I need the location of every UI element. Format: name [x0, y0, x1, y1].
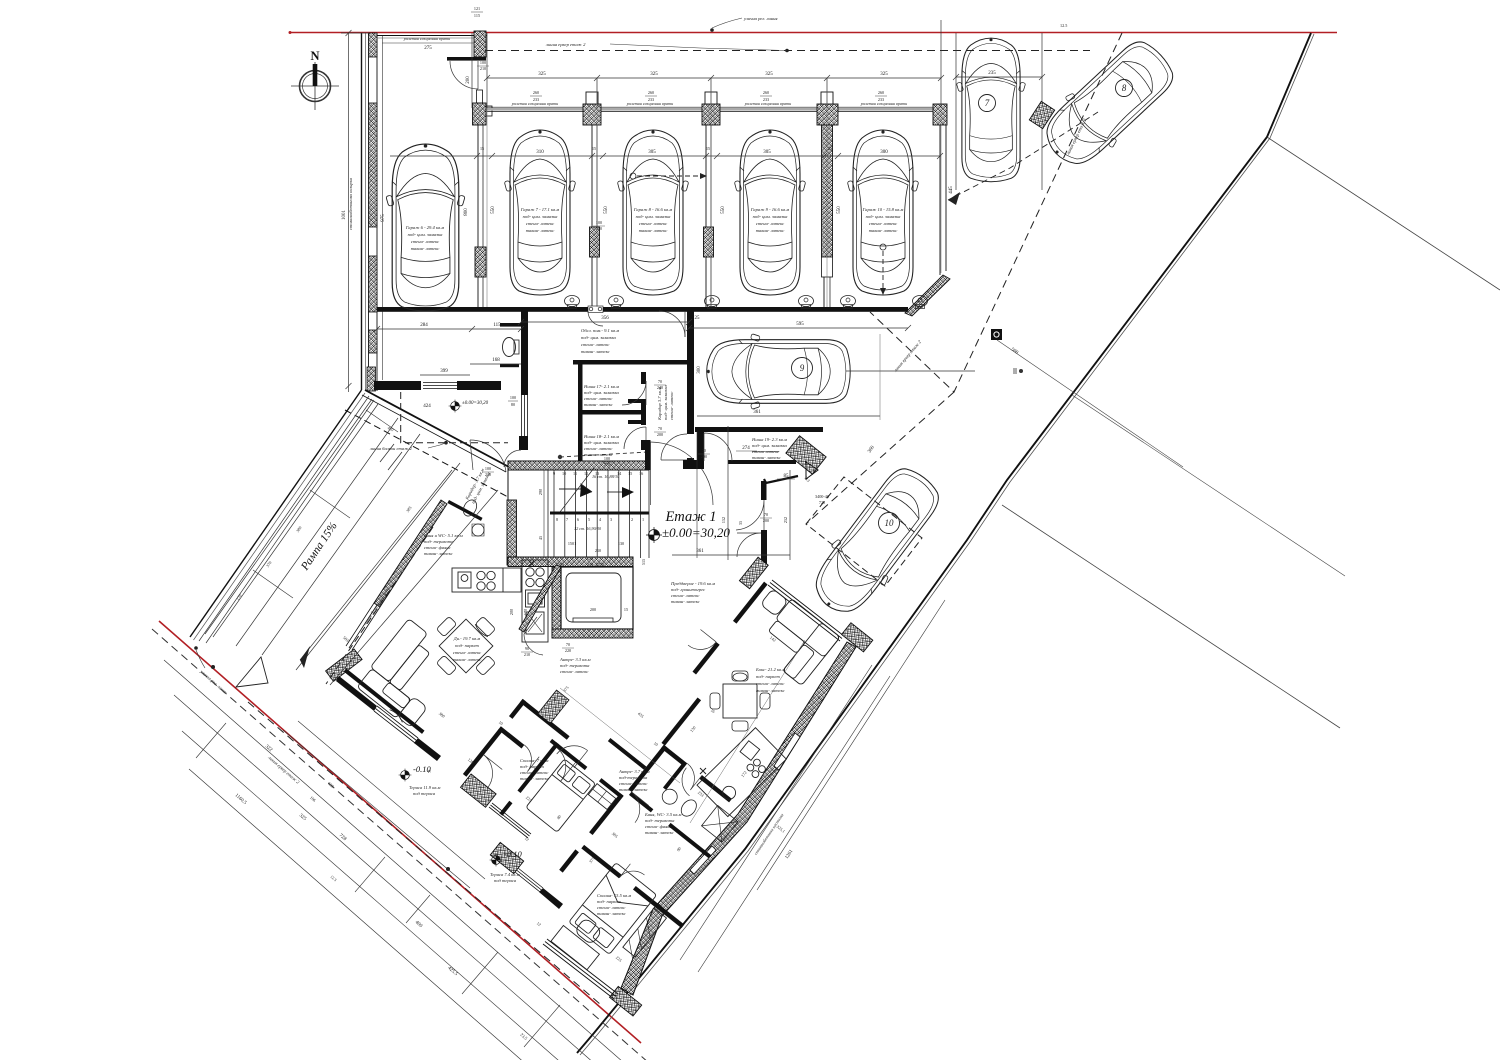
svg-text:25: 25: [695, 316, 701, 321]
svg-text:260: 260: [533, 90, 539, 95]
svg-text:233: 233: [648, 97, 654, 102]
svg-text:8: 8: [556, 517, 558, 522]
svg-text:таван- латекс: таван- латекс: [639, 228, 668, 233]
svg-text:таван- латекс: таван- латекс: [520, 776, 549, 781]
svg-text:290: 290: [538, 489, 543, 495]
svg-text:таван- латекс: таван- латекс: [597, 911, 626, 916]
svg-text:стени- латекс: стени- латекс: [411, 239, 439, 244]
svg-text:975: 975: [381, 214, 386, 222]
svg-text:под- цим. замазка: под- цим. замазка: [752, 443, 788, 448]
svg-text:70: 70: [566, 642, 570, 647]
svg-text:Гараж 10 - 15.8 кв.м: Гараж 10 - 15.8 кв.м: [862, 207, 904, 212]
svg-text:13: 13: [595, 471, 599, 476]
svg-text:399: 399: [440, 369, 448, 374]
svg-text:стени- латекс: стени- латекс: [520, 770, 548, 775]
svg-text:таван- латекс: таван- латекс: [411, 246, 440, 251]
svg-text:233: 233: [533, 97, 539, 102]
svg-text:под- цим. замазка: под- цим. замазка: [584, 440, 620, 445]
svg-text:Тераса 11.9 кв.м: Тераса 11.9 кв.м: [409, 785, 441, 790]
svg-text:таван- латекс: таван- латекс: [526, 228, 555, 233]
svg-text:линия еркер етаж 2: линия еркер етаж 2: [545, 42, 586, 47]
svg-text:под- гранитогрес: под- гранитогрес: [671, 587, 705, 592]
svg-text:800: 800: [464, 208, 469, 216]
svg-text:под- цим. замазка: под- цим. замазка: [636, 214, 672, 219]
svg-text:под- паркет: под- паркет: [756, 674, 780, 679]
svg-text:стени-латекс: стени-латекс: [752, 449, 779, 454]
svg-text:стени- латекс: стени- латекс: [669, 392, 674, 420]
svg-text:115: 115: [474, 13, 480, 18]
svg-text:150: 150: [587, 556, 593, 561]
svg-text:Гараж 7 - 17.1 кв.м: Гараж 7 - 17.1 кв.м: [520, 207, 559, 212]
svg-text:7: 7: [566, 517, 568, 522]
svg-text:305: 305: [648, 150, 656, 155]
svg-text:5: 5: [588, 517, 590, 522]
svg-text:210: 210: [480, 66, 486, 71]
svg-text:3: 3: [610, 517, 612, 522]
svg-text:таван- латекс: таван- латекс: [645, 830, 674, 835]
svg-text:стени- латекс: стени- латекс: [453, 650, 481, 655]
svg-text:15: 15: [480, 146, 484, 151]
svg-text:115: 115: [493, 323, 501, 328]
svg-text:170: 170: [523, 609, 528, 615]
svg-text:таван- латекс: таван- латекс: [752, 455, 781, 460]
svg-text:200: 200: [509, 609, 514, 615]
svg-text:300: 300: [697, 366, 702, 374]
svg-text:325: 325: [538, 72, 546, 77]
svg-text:стени- латекс: стени- латекс: [869, 221, 897, 226]
svg-text:стени- латекс: стени- латекс: [756, 681, 784, 686]
svg-text:85: 85: [784, 474, 790, 479]
svg-text:12.5: 12.5: [1060, 23, 1067, 28]
svg-text:550: 550: [604, 206, 609, 214]
svg-text:таван- латекс: таван- латекс: [619, 787, 648, 792]
svg-text:под- цим. замазка: под- цим. замазка: [663, 384, 668, 420]
svg-text:Ниша 18- 2.1 кв.м: Ниша 18- 2.1 кв.м: [583, 434, 619, 439]
svg-text:таван- латекс: таван- латекс: [756, 688, 785, 693]
svg-text:1001: 1001: [342, 210, 347, 221]
svg-text:200: 200: [590, 607, 596, 612]
svg-text:100: 100: [485, 466, 491, 471]
svg-text:1: 1: [642, 517, 644, 522]
svg-text:210: 210: [587, 562, 593, 567]
svg-text:8: 8: [1122, 83, 1127, 93]
svg-text:595: 595: [796, 322, 804, 327]
svg-text:550: 550: [721, 206, 726, 214]
svg-text:720: 720: [819, 500, 825, 505]
svg-text:стени- латекс: стени- латекс: [619, 781, 647, 786]
svg-text:под- теракота: под- теракота: [424, 539, 454, 544]
svg-text:под- цим. замазка: под- цим. замазка: [408, 232, 444, 237]
svg-text:550: 550: [837, 206, 842, 214]
svg-text:стени- латекс: стени- латекс: [584, 446, 612, 451]
svg-text:210: 210: [524, 652, 530, 657]
svg-text:Антре- 3.3 кв.м: Антре- 3.3 кв.м: [559, 657, 591, 662]
svg-text:стени- латекс: стени- латекс: [560, 669, 588, 674]
svg-text:100: 100: [596, 220, 602, 225]
svg-text:таван- латекс: таван- латекс: [756, 228, 785, 233]
svg-text:70: 70: [658, 426, 662, 431]
svg-text:улична рег. линия: улична рег. линия: [743, 16, 778, 21]
svg-text:3400-40: 3400-40: [815, 494, 829, 499]
svg-text:под- цим. замазка: под- цим. замазка: [753, 214, 789, 219]
svg-text:515: 515: [641, 559, 646, 565]
svg-text:ролетни секционни врати: ролетни секционни врати: [403, 36, 450, 41]
svg-text:Спалня- 7 кв.м: Спалня- 7 кв.м: [520, 758, 548, 763]
svg-text:550: 550: [491, 206, 496, 214]
svg-text:таван- латекс: таван- латекс: [584, 402, 613, 407]
svg-text:121: 121: [474, 6, 480, 11]
svg-text:310: 310: [536, 150, 544, 155]
svg-text:200: 200: [763, 518, 769, 523]
svg-text:линия балкон етаж 2: линия балкон етаж 2: [369, 446, 413, 451]
svg-text:15: 15: [628, 471, 632, 476]
svg-text:445: 445: [949, 186, 954, 194]
svg-text:233: 233: [763, 97, 769, 102]
svg-text:стени- латекс: стени- латекс: [584, 396, 612, 401]
svg-text:1501: 1501: [568, 541, 576, 546]
svg-text:2: 2: [631, 517, 633, 522]
svg-text:70: 70: [764, 512, 768, 517]
svg-text:80: 80: [511, 402, 515, 407]
svg-text:90: 90: [525, 646, 529, 651]
svg-text:под- теракота: под- теракота: [560, 663, 590, 668]
svg-text:100: 100: [510, 395, 516, 400]
svg-text:11: 11: [573, 471, 577, 476]
svg-text:Ниша 19- 2.3 кв.м: Ниша 19- 2.3 кв.м: [751, 437, 787, 442]
svg-text:Гараж 9 - 16.6 кв.м: Гараж 9 - 16.6 кв.м: [750, 207, 789, 212]
svg-text:Гараж 8 - 16.6 кв.м: Гараж 8 - 16.6 кв.м: [633, 207, 672, 212]
svg-text:300: 300: [880, 150, 888, 155]
svg-text:Коридор 3.7 кв.м: Коридор 3.7 кв.м: [657, 387, 662, 421]
svg-text:361: 361: [753, 410, 761, 415]
svg-text:15: 15: [706, 146, 710, 151]
svg-text:стени- фаянс: стени- фаянс: [645, 824, 672, 829]
svg-text:стени- латекс: стени- латекс: [597, 905, 625, 910]
svg-text:260: 260: [763, 90, 769, 95]
svg-text:235: 235: [988, 71, 996, 76]
svg-text:6: 6: [577, 517, 579, 522]
svg-text:стени- латекс: стени- латекс: [671, 593, 699, 598]
svg-text:-0.10: -0.10: [504, 849, 522, 859]
svg-text:35: 35: [738, 521, 743, 525]
svg-text:Преддверие - 19.6 кв.м: Преддверие - 19.6 кв.м: [670, 581, 715, 586]
svg-text:210: 210: [596, 226, 602, 231]
svg-text:305: 305: [763, 150, 771, 155]
svg-text:252: 252: [783, 517, 788, 523]
svg-text:Баня и WC- 5.1 кв.м: Баня и WC- 5.1 кв.м: [423, 533, 463, 538]
svg-text:±0.00=30,20: ±0.00=30,20: [462, 401, 489, 406]
svg-text:9: 9: [553, 471, 555, 476]
svg-text:под тераса: под тераса: [413, 791, 436, 796]
svg-text:325: 325: [880, 72, 888, 77]
svg-text:274: 274: [742, 446, 750, 451]
svg-text:2710: 2710: [596, 562, 604, 567]
svg-text:под- цим. замазка: под- цим. замазка: [581, 335, 617, 340]
svg-text:356: 356: [601, 316, 609, 321]
svg-text:45: 45: [538, 536, 543, 540]
svg-text:325: 325: [765, 72, 773, 77]
svg-text:70: 70: [658, 379, 662, 384]
svg-text:275: 275: [424, 46, 432, 51]
svg-text:100: 100: [604, 456, 610, 461]
svg-text:200: 200: [466, 76, 471, 84]
svg-text:15: 15: [592, 146, 596, 151]
svg-text:таван- латекс: таван- латекс: [424, 551, 453, 556]
svg-text:200: 200: [701, 454, 707, 459]
svg-text:под- паркет: под- паркет: [520, 764, 544, 769]
svg-text:260: 260: [878, 90, 884, 95]
svg-text:под-теракота: под-теракота: [619, 775, 648, 780]
svg-text:Гараж 6 - 29.4 кв.м: Гараж 6 - 29.4 кв.м: [405, 225, 444, 230]
svg-text:стени- латекс: стени- латекс: [639, 221, 667, 226]
svg-text:Ниша 17- 2.1 кв.м: Ниша 17- 2.1 кв.м: [583, 384, 619, 389]
svg-text:168: 168: [492, 358, 500, 363]
svg-text:130: 130: [618, 541, 624, 546]
svg-text:10: 10: [562, 471, 566, 476]
svg-text:7: 7: [985, 98, 990, 108]
svg-text:770: 770: [604, 462, 610, 467]
svg-text:25: 25: [828, 146, 832, 151]
svg-text:Р.: Р.: [427, 769, 431, 774]
svg-text:Етаж 1: Етаж 1: [664, 509, 716, 525]
svg-text:70: 70: [702, 448, 706, 453]
svg-text:210: 210: [485, 472, 491, 477]
svg-text:325: 325: [650, 72, 658, 77]
svg-text:±0.00=30,20: ±0.00=30,20: [662, 525, 730, 540]
svg-text:Бокс- 21.2 кв.м: Бокс- 21.2 кв.м: [755, 667, 785, 672]
svg-text:220: 220: [565, 648, 571, 653]
svg-text:10: 10: [885, 518, 895, 528]
svg-text:таван- латекс: таван- латекс: [581, 349, 610, 354]
svg-text:стени- латекс: стени- латекс: [756, 221, 784, 226]
svg-text:под- цим. замазка: под- цим. замазка: [523, 214, 559, 219]
svg-text:под- теракота: под- теракота: [645, 818, 675, 823]
svg-text:N: N: [310, 49, 319, 63]
svg-text:100: 100: [480, 60, 486, 65]
svg-text:под тераса: под тераса: [494, 878, 517, 883]
svg-text:210: 210: [595, 548, 601, 553]
svg-text:под- паркет: под- паркет: [455, 643, 479, 648]
svg-text:Обсл. пом.- 9.1 кв.м: Обсл. пом.- 9.1 кв.м: [581, 328, 619, 333]
svg-text:Тераса 7.4 кв.м: Тераса 7.4 кв.м: [490, 872, 520, 877]
svg-text:240: 240: [657, 385, 663, 390]
svg-text:таван- латекс: таван- латекс: [869, 228, 898, 233]
svg-text:Дн.- 19.7 кв.м: Дн.- 19.7 кв.м: [453, 636, 481, 641]
svg-text:таван- латекс: таван- латекс: [671, 599, 700, 604]
svg-text:15: 15: [624, 607, 628, 612]
svg-text:260: 260: [648, 90, 654, 95]
svg-text:424: 424: [423, 404, 431, 409]
svg-text:стени- латекс: стени- латекс: [581, 342, 609, 347]
svg-text:12: 12: [584, 471, 588, 476]
svg-text:284: 284: [420, 323, 428, 328]
svg-text:Антре- 3.7 кв.м: Антре- 3.7 кв.м: [618, 769, 650, 774]
svg-text:9: 9: [800, 363, 805, 373]
svg-text:361: 361: [696, 549, 704, 554]
svg-text:под- цим. замазка: под- цим. замазка: [866, 214, 902, 219]
svg-text:233: 233: [878, 97, 884, 102]
svg-text:200: 200: [657, 432, 663, 437]
svg-text:под- цим. замазка: под- цим. замазка: [584, 390, 620, 395]
svg-text:стени- латекс: стени- латекс: [526, 221, 554, 226]
svg-text:152: 152: [721, 517, 726, 523]
svg-text:16: 16: [639, 471, 643, 476]
svg-text:1501: 1501: [556, 562, 564, 567]
